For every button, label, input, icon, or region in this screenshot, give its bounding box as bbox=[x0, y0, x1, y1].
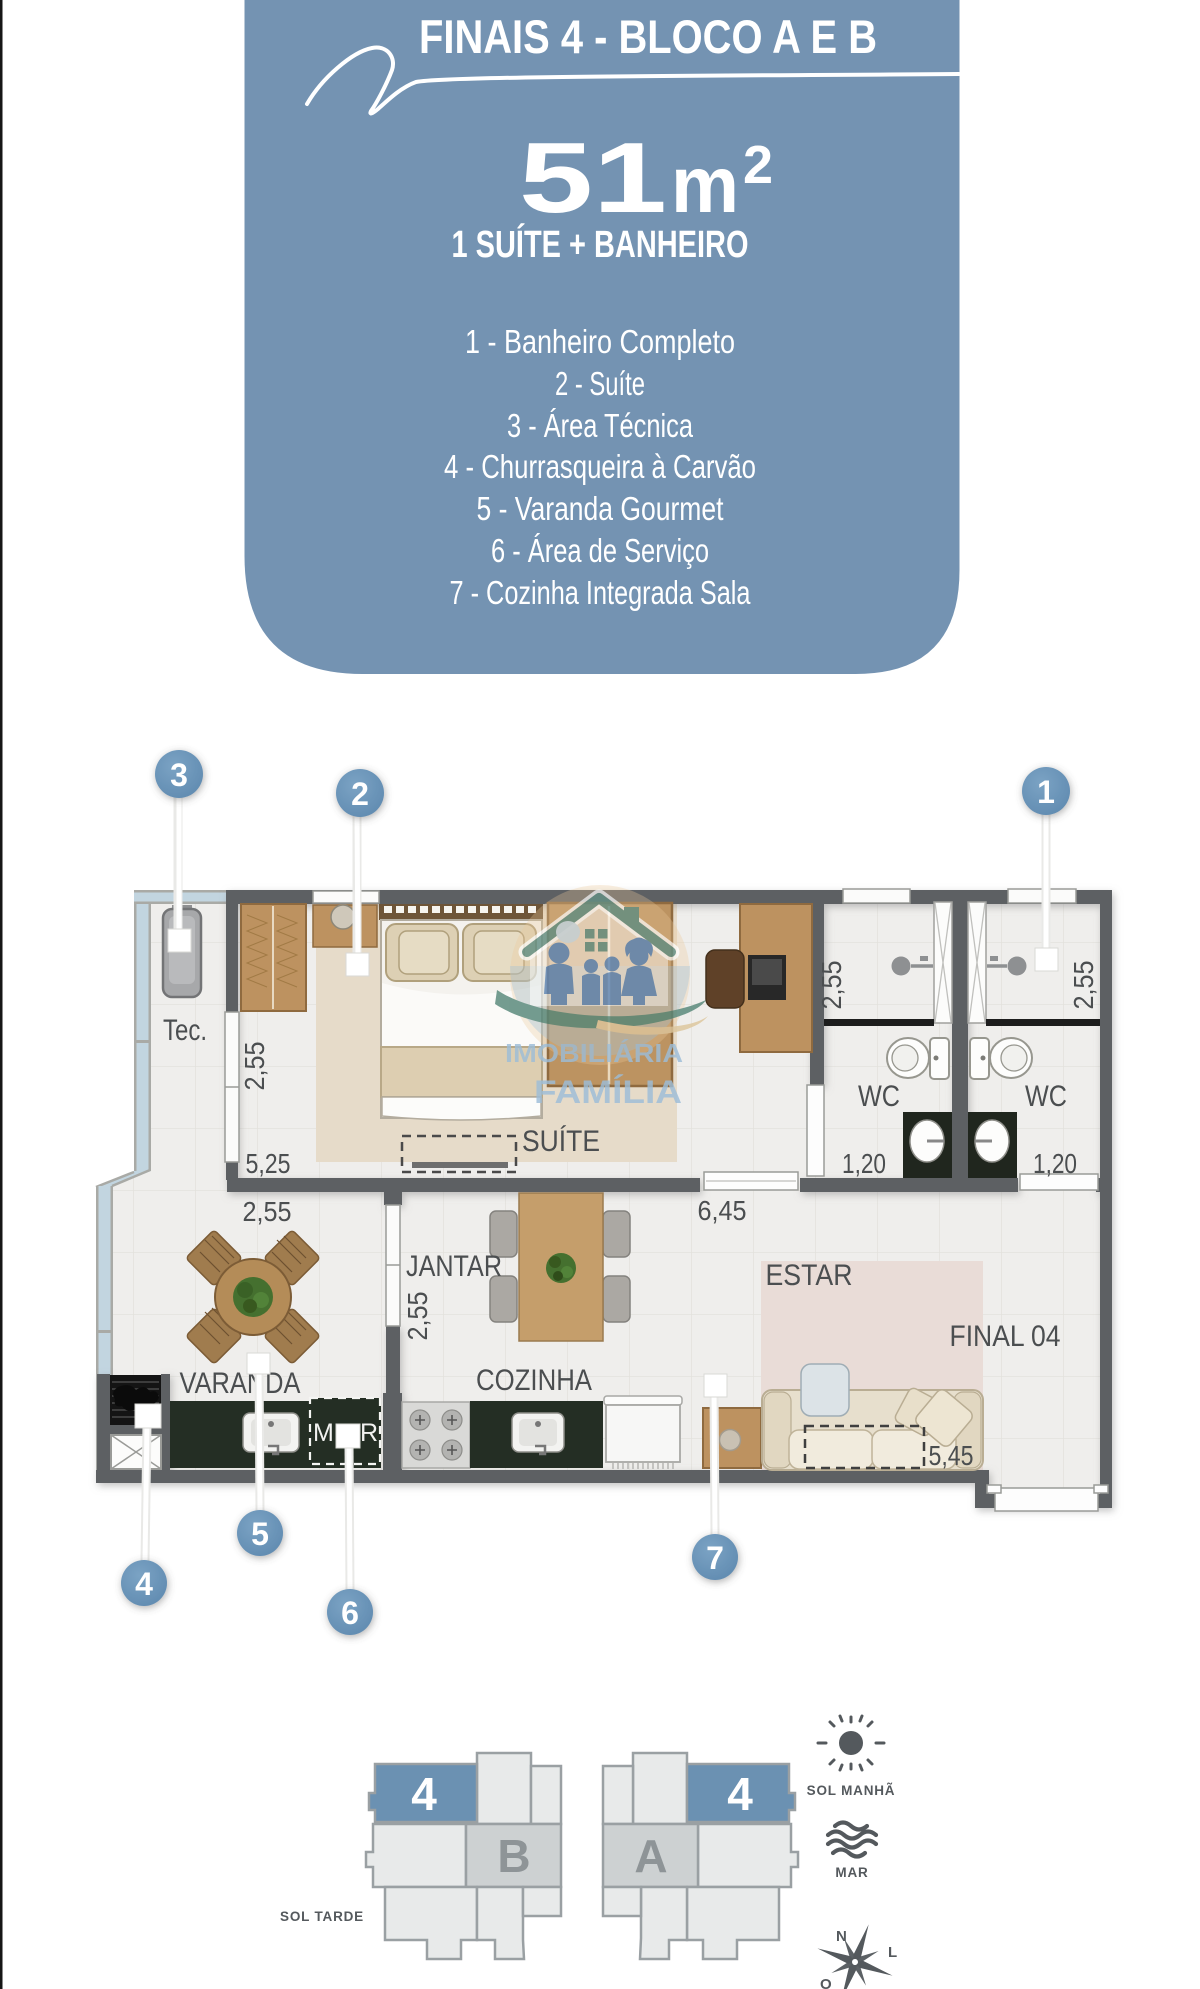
svg-text:m: m bbox=[671, 140, 739, 229]
svg-text:7: 7 bbox=[706, 1540, 724, 1576]
svg-text:5,45: 5,45 bbox=[929, 1440, 974, 1471]
svg-text:6: 6 bbox=[341, 1595, 359, 1631]
svg-text:JANTAR: JANTAR bbox=[406, 1250, 502, 1283]
svg-text:6 - Área de Serviço: 6 - Área de Serviço bbox=[491, 532, 709, 569]
svg-text:O: O bbox=[820, 1976, 832, 1989]
svg-text:4: 4 bbox=[135, 1566, 153, 1602]
svg-text:2,55: 2,55 bbox=[816, 961, 847, 1010]
svg-text:VARANDA: VARANDA bbox=[180, 1367, 301, 1400]
svg-text:WC: WC bbox=[1025, 1080, 1067, 1113]
svg-text:2,55: 2,55 bbox=[1068, 961, 1099, 1010]
svg-text:FINAIS 4 - BLOCO A E B: FINAIS 4 - BLOCO A E B bbox=[419, 10, 877, 63]
svg-text:COZINHA: COZINHA bbox=[476, 1364, 592, 1397]
svg-text:MAR: MAR bbox=[835, 1865, 868, 1880]
svg-text:5 - Varanda Gourmet: 5 - Varanda Gourmet bbox=[477, 490, 724, 527]
svg-text:1,20: 1,20 bbox=[1033, 1148, 1077, 1179]
svg-text:4: 4 bbox=[727, 1768, 753, 1820]
svg-text:2: 2 bbox=[351, 776, 369, 812]
svg-text:FINAL 04: FINAL 04 bbox=[950, 1320, 1061, 1353]
svg-text:FAMÍLIA: FAMÍLIA bbox=[534, 1074, 682, 1110]
svg-text:51: 51 bbox=[519, 122, 667, 234]
svg-text:1,20: 1,20 bbox=[842, 1148, 886, 1179]
svg-text:2 - Suíte: 2 - Suíte bbox=[555, 365, 645, 402]
svg-text:B: B bbox=[497, 1830, 530, 1882]
svg-text:1 SUÍTE + BANHEIRO: 1 SUÍTE + BANHEIRO bbox=[452, 222, 749, 266]
svg-text:SOL MANHÃ: SOL MANHÃ bbox=[807, 1783, 896, 1798]
svg-text:7 - Cozinha Integrada Sala: 7 - Cozinha Integrada Sala bbox=[450, 574, 751, 611]
svg-text:IMOBILIÁRIA: IMOBILIÁRIA bbox=[505, 1038, 683, 1068]
svg-text:1: 1 bbox=[1037, 774, 1055, 810]
svg-text:2: 2 bbox=[743, 135, 773, 195]
svg-text:A: A bbox=[634, 1830, 667, 1882]
svg-text:3: 3 bbox=[170, 757, 188, 793]
svg-text:WC: WC bbox=[858, 1080, 900, 1113]
svg-text:1 - Banheiro Completo: 1 - Banheiro Completo bbox=[465, 323, 735, 360]
svg-text:N: N bbox=[836, 1928, 847, 1945]
svg-text:SUÍTE: SUÍTE bbox=[522, 1125, 600, 1158]
svg-text:R: R bbox=[360, 1419, 378, 1447]
svg-text:2,55: 2,55 bbox=[402, 1292, 433, 1341]
svg-text:5: 5 bbox=[251, 1516, 269, 1552]
svg-text:2,55: 2,55 bbox=[239, 1042, 270, 1091]
svg-text:L: L bbox=[888, 1944, 897, 1961]
svg-text:Tec.: Tec. bbox=[163, 1014, 207, 1047]
svg-text:3 - Área Técnica: 3 - Área Técnica bbox=[507, 407, 693, 444]
svg-text:2,55: 2,55 bbox=[243, 1196, 292, 1227]
svg-text:6,45: 6,45 bbox=[698, 1195, 747, 1226]
svg-text:5,25: 5,25 bbox=[246, 1148, 291, 1179]
svg-text:4 - Churrasqueira à Carvão: 4 - Churrasqueira à Carvão bbox=[444, 448, 756, 485]
svg-text:ESTAR: ESTAR bbox=[766, 1259, 853, 1292]
svg-text:4: 4 bbox=[411, 1768, 437, 1820]
svg-text:SOL TARDE: SOL TARDE bbox=[280, 1909, 364, 1924]
